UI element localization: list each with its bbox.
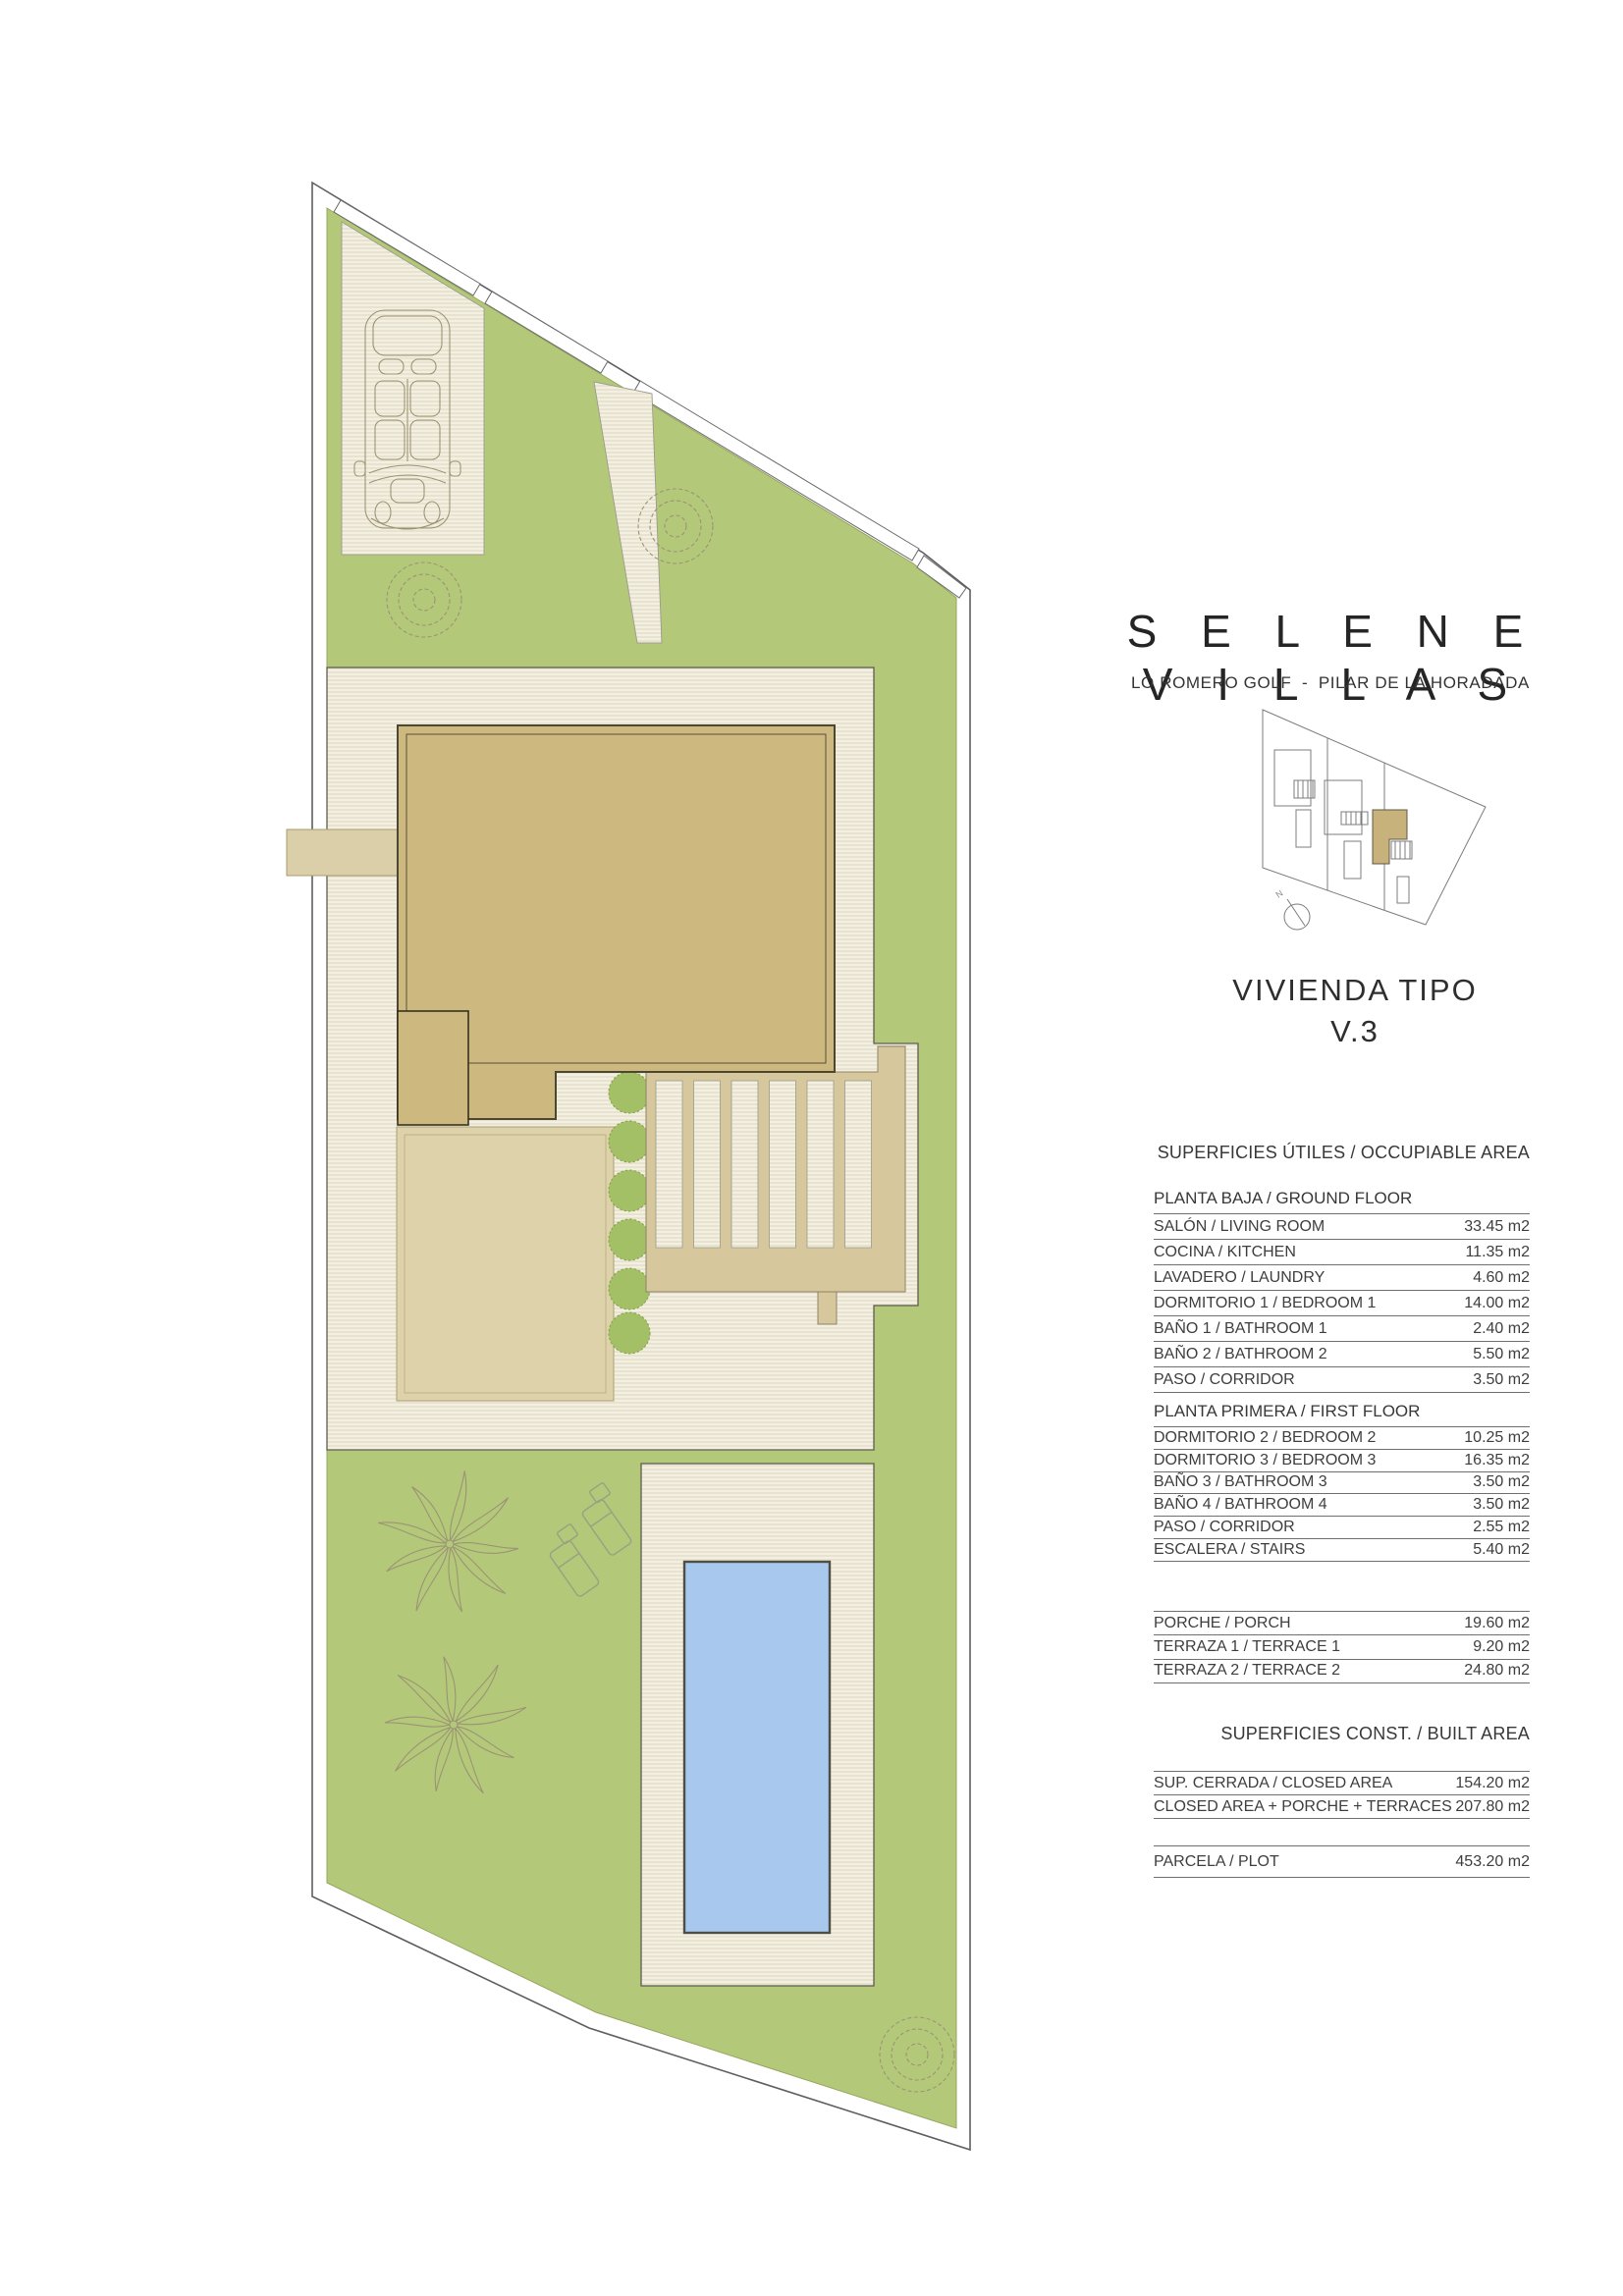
table-row: PARCELA / PLOT 453.20 m2 — [1154, 1846, 1530, 1878]
room-area: 9.20 m2 — [1473, 1638, 1530, 1656]
room-area: 33.45 m2 — [1464, 1218, 1530, 1236]
occupiable-area-heading: SUPERFICIES ÚTILES / OCCUPIABLE AREA — [1154, 1143, 1530, 1163]
built-area-heading: SUPERFICIES CONST. / BUILT AREA — [1154, 1724, 1530, 1744]
room-label: ESCALERA / STAIRS — [1154, 1541, 1305, 1559]
room-label: PORCHE / PORCH — [1154, 1615, 1291, 1632]
stairs-pergola — [646, 1046, 905, 1324]
room-area: 24.80 m2 — [1464, 1662, 1530, 1680]
area-value: 207.80 m2 — [1455, 1798, 1530, 1816]
table-row: ESCALERA / STAIRS 5.40 m2 — [1154, 1539, 1530, 1562]
area-label: CLOSED AREA + PORCHE + TERRACES — [1154, 1798, 1452, 1816]
room-area: 11.35 m2 — [1465, 1244, 1530, 1261]
room-label: PASO / CORRIDOR — [1154, 1519, 1295, 1536]
table-row: BAÑO 1 / BATHROOM 1 2.40 m2 — [1154, 1316, 1530, 1342]
table-row: SUP. CERRADA / CLOSED AREA 154.20 m2 — [1154, 1772, 1530, 1795]
table-row: BAÑO 2 / BATHROOM 2 5.50 m2 — [1154, 1342, 1530, 1367]
room-area: 3.50 m2 — [1473, 1496, 1530, 1514]
room-label: TERRAZA 1 / TERRACE 1 — [1154, 1638, 1340, 1656]
driveway — [342, 222, 484, 555]
table-row: PASO / CORRIDOR 3.50 m2 — [1154, 1367, 1530, 1393]
room-area: 2.55 m2 — [1473, 1519, 1530, 1536]
room-area: 14.00 m2 — [1464, 1295, 1530, 1312]
table-row: PASO / CORRIDOR 2.55 m2 — [1154, 1517, 1530, 1539]
room-area: 10.25 m2 — [1464, 1429, 1530, 1447]
room-label: TERRAZA 2 / TERRACE 2 — [1154, 1662, 1340, 1680]
table-row: CLOSED AREA + PORCHE + TERRACES 207.80 m… — [1154, 1795, 1530, 1819]
table-row: DORMITORIO 1 / BEDROOM 1 14.00 m2 — [1154, 1291, 1530, 1316]
unit-type-label: VIVIENDA TIPO — [1213, 973, 1497, 1008]
room-label: COCINA / KITCHEN — [1154, 1244, 1296, 1261]
entry-step — [287, 829, 398, 876]
room-label: BAÑO 2 / BATHROOM 2 — [1154, 1346, 1327, 1363]
room-area: 3.50 m2 — [1473, 1473, 1530, 1491]
room-area: 19.60 m2 — [1464, 1615, 1530, 1632]
first-floor-table: PLANTA PRIMERA / FIRST FLOOR DORMITORIO … — [1154, 1402, 1530, 1562]
room-area: 5.50 m2 — [1473, 1346, 1530, 1363]
outdoor-areas-table: PORCHE / PORCH 19.60 m2 TERRAZA 1 / TERR… — [1154, 1611, 1530, 1683]
project-subtitle: LO ROMERO GOLF - PILAR DE LA HORADADA — [1098, 673, 1563, 693]
area-value: 154.20 m2 — [1455, 1775, 1530, 1792]
area-label: PARCELA / PLOT — [1154, 1853, 1279, 1871]
entry-porch — [398, 1011, 468, 1125]
north-compass-icon: N — [1273, 888, 1310, 930]
built-area-table: SUP. CERRADA / CLOSED AREA 154.20 m2 CLO… — [1154, 1771, 1530, 1819]
table-row: DORMITORIO 3 / BEDROOM 3 16.35 m2 — [1154, 1450, 1530, 1472]
plot-table: PARCELA / PLOT 453.20 m2 — [1154, 1845, 1530, 1878]
room-label: DORMITORIO 1 / BEDROOM 1 — [1154, 1295, 1376, 1312]
room-label: DORMITORIO 2 / BEDROOM 2 — [1154, 1429, 1376, 1447]
ground-floor-table: PLANTA BAJA / GROUND FLOOR SALÓN / LIVIN… — [1154, 1189, 1530, 1393]
room-label: BAÑO 1 / BATHROOM 1 — [1154, 1320, 1327, 1338]
table-row: TERRAZA 2 / TERRACE 2 24.80 m2 — [1154, 1660, 1530, 1683]
north-label: N — [1273, 888, 1284, 900]
room-label: BAÑO 4 / BATHROOM 4 — [1154, 1496, 1327, 1514]
room-area: 3.50 m2 — [1473, 1371, 1530, 1389]
table-row: LAVADERO / LAUNDRY 4.60 m2 — [1154, 1265, 1530, 1291]
brochure-page: { "header": { "title": "S E L E N E V I … — [0, 0, 1623, 2296]
table-row: PORCHE / PORCH 19.60 m2 — [1154, 1612, 1530, 1635]
project-title: S E L E N E V I L L A S — [1098, 605, 1563, 711]
minimap-unit-v3 — [1373, 810, 1407, 864]
room-area: 4.60 m2 — [1473, 1269, 1530, 1287]
room-label: BAÑO 3 / BATHROOM 3 — [1154, 1473, 1327, 1491]
ground-floor-heading: PLANTA BAJA / GROUND FLOOR — [1154, 1189, 1530, 1213]
table-row: SALÓN / LIVING ROOM 33.45 m2 — [1154, 1214, 1530, 1240]
unit-type-code: V.3 — [1213, 1014, 1497, 1049]
room-label: SALÓN / LIVING ROOM — [1154, 1218, 1325, 1236]
first-floor-heading: PLANTA PRIMERA / FIRST FLOOR — [1154, 1402, 1530, 1426]
house-footprint — [398, 725, 835, 1125]
area-label: SUP. CERRADA / CLOSED AREA — [1154, 1775, 1392, 1792]
room-area: 2.40 m2 — [1473, 1320, 1530, 1338]
table-row: COCINA / KITCHEN 11.35 m2 — [1154, 1240, 1530, 1265]
room-area: 16.35 m2 — [1464, 1452, 1530, 1469]
table-row: BAÑO 3 / BATHROOM 3 3.50 m2 — [1154, 1472, 1530, 1495]
table-row: TERRAZA 1 / TERRACE 1 9.20 m2 — [1154, 1635, 1530, 1659]
room-label: PASO / CORRIDOR — [1154, 1371, 1295, 1389]
area-value: 453.20 m2 — [1455, 1853, 1530, 1871]
table-row: BAÑO 4 / BATHROOM 4 3.50 m2 — [1154, 1494, 1530, 1517]
room-label: DORMITORIO 3 / BEDROOM 3 — [1154, 1452, 1376, 1469]
swimming-pool — [684, 1562, 830, 1933]
table-row: DORMITORIO 2 / BEDROOM 2 10.25 m2 — [1154, 1427, 1530, 1450]
terrace — [397, 1127, 614, 1401]
location-minimap: N — [1263, 710, 1486, 930]
room-area: 5.40 m2 — [1473, 1541, 1530, 1559]
room-label: LAVADERO / LAUNDRY — [1154, 1269, 1325, 1287]
